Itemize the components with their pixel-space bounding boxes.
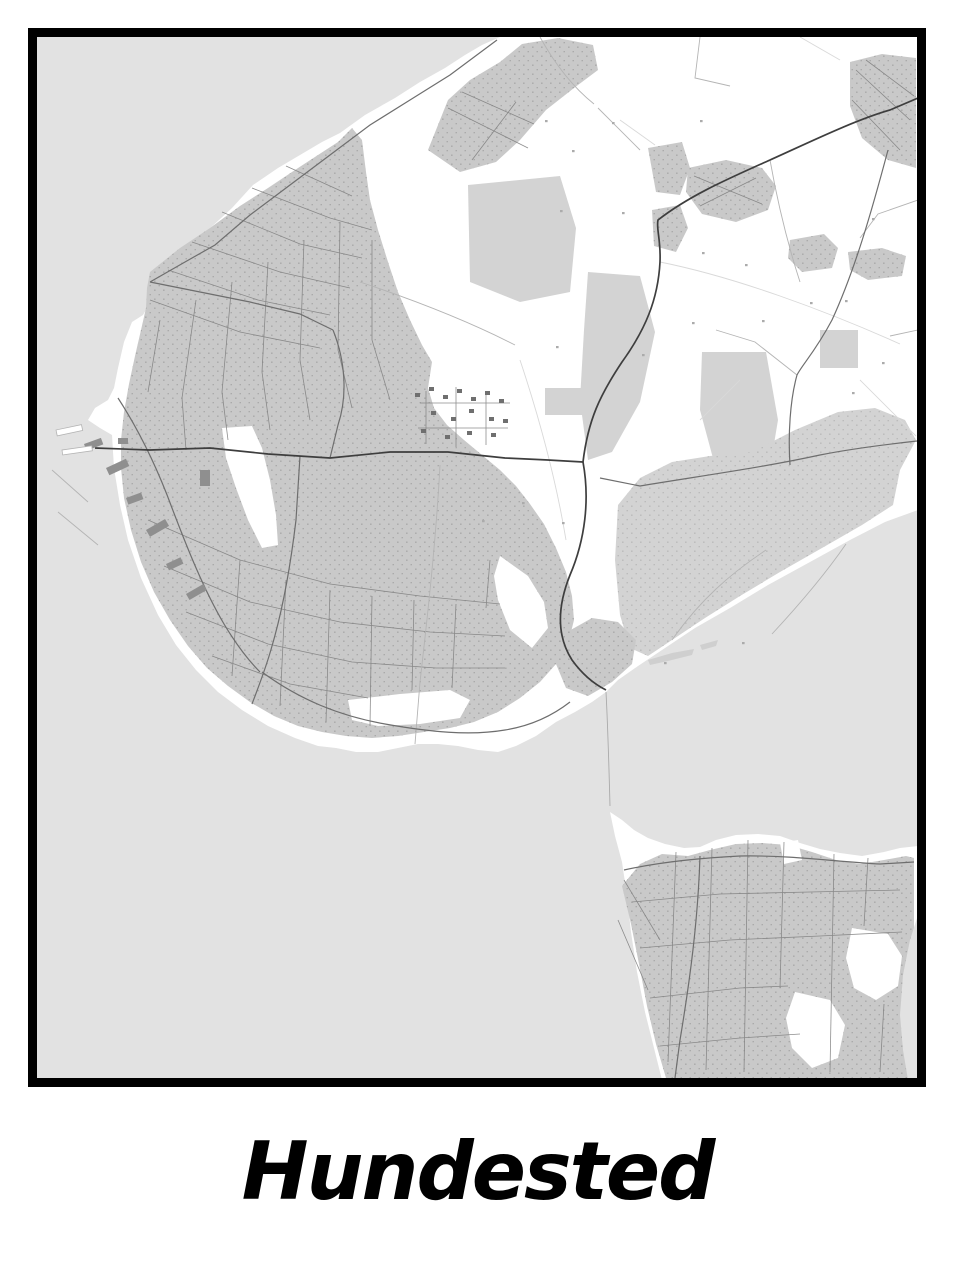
poster-title: Hundested	[0, 1132, 955, 1212]
poster: Hundested	[0, 0, 955, 1271]
map-frame	[28, 28, 926, 1087]
map-canvas	[37, 37, 917, 1078]
